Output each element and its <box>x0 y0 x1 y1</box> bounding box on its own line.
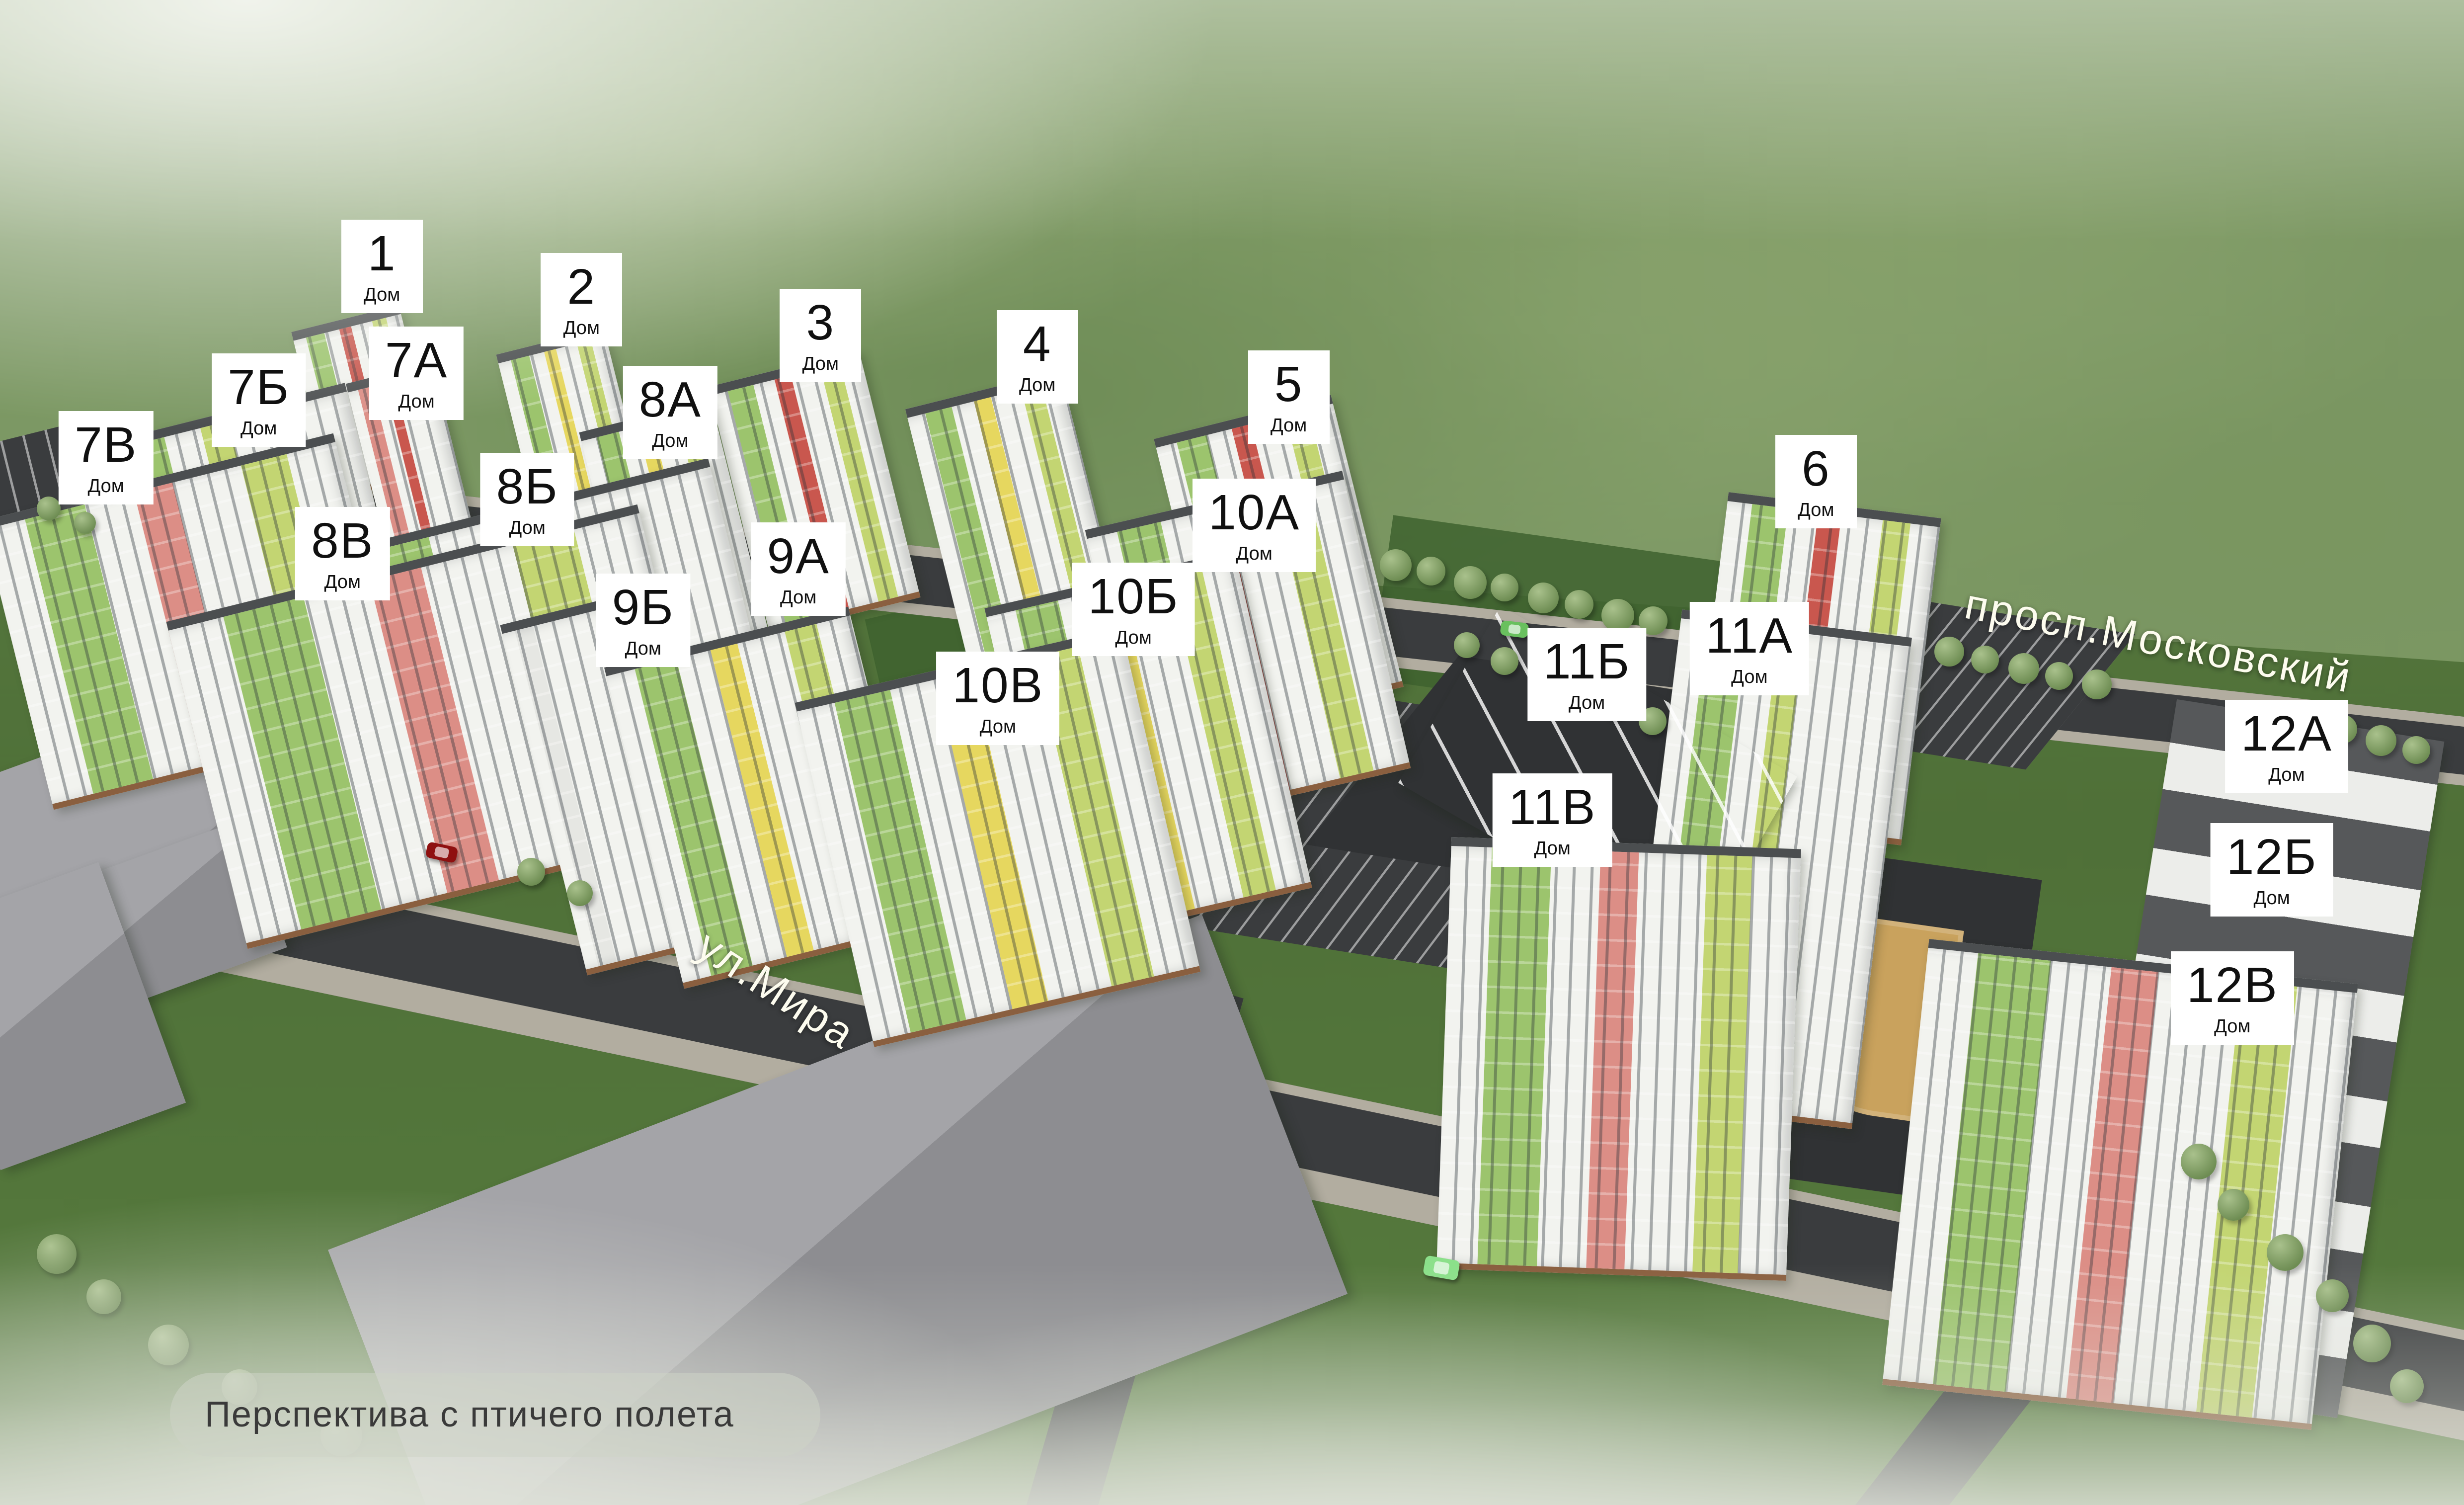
house-word: Дом <box>1706 668 1794 686</box>
house-word: Дом <box>1013 376 1062 395</box>
building-label-6[interactable]: 6Дом <box>1775 435 1857 528</box>
house-word: Дом <box>612 639 674 658</box>
house-word: Дом <box>639 431 702 450</box>
tree <box>2181 1144 2217 1179</box>
building-label-12Б[interactable]: 12БДом <box>2211 823 2333 917</box>
tree <box>1528 583 1559 613</box>
house-word: Дом <box>357 285 407 304</box>
tree <box>2045 662 2073 690</box>
house-word: Дом <box>767 588 830 607</box>
tree <box>2218 1189 2249 1221</box>
tree <box>1934 637 1964 667</box>
masterplan-rendering: ул.Мирапросп.Московский 1Дом2Дом3Дом4Дом… <box>0 0 2464 1505</box>
tree <box>2402 736 2430 764</box>
building-label-11А[interactable]: 11АДом <box>1690 602 1810 695</box>
house-word: Дом <box>385 392 448 411</box>
house-word: Дом <box>1543 693 1630 712</box>
building-label-8Б[interactable]: 8БДом <box>480 453 574 546</box>
building-number: 12В <box>2187 960 2278 1010</box>
tree <box>1491 574 1518 601</box>
building-number: 9Б <box>612 583 674 632</box>
tree <box>1491 647 1518 675</box>
building-number: 10А <box>1208 488 1300 537</box>
building-label-10А[interactable]: 10АДом <box>1192 479 1316 572</box>
building-number: 2 <box>556 262 606 312</box>
building-label-11Б[interactable]: 11БДом <box>1527 628 1646 721</box>
building-label-11В[interactable]: 11ВДом <box>1493 773 1612 867</box>
house-word: Дом <box>2226 889 2317 908</box>
building-number: 10Б <box>1088 572 1179 621</box>
building-label-2[interactable]: 2Дом <box>541 253 622 346</box>
tree <box>517 858 545 886</box>
building-number: 10В <box>952 661 1043 710</box>
building-label-9А[interactable]: 9АДом <box>751 522 846 616</box>
tree <box>86 1279 121 1314</box>
tree <box>1454 566 1487 599</box>
building-number: 9А <box>767 531 830 581</box>
house-word: Дом <box>556 319 606 337</box>
caption-text: Перспектива с птичего полета <box>205 1394 734 1435</box>
building-number: 12Б <box>2226 832 2317 882</box>
tree <box>1971 646 1999 673</box>
building-label-8А[interactable]: 8АДом <box>623 366 717 459</box>
tree <box>37 1234 77 1274</box>
house-word: Дом <box>75 477 137 496</box>
tree <box>74 512 96 534</box>
house-word: Дом <box>496 518 558 537</box>
green-bus <box>1500 620 1529 638</box>
building-number: 8А <box>639 375 702 424</box>
house-word: Дом <box>2241 765 2332 784</box>
tree <box>2267 1234 2304 1271</box>
building-label-7А[interactable]: 7АДом <box>369 327 464 420</box>
house-word: Дом <box>1088 628 1179 647</box>
building-label-5[interactable]: 5Дом <box>1248 350 1330 444</box>
building-label-3[interactable]: 3Дом <box>780 289 861 382</box>
building-number: 12А <box>2241 709 2332 758</box>
tree <box>1565 590 1593 619</box>
building-label-12В[interactable]: 12ВДом <box>2171 951 2294 1045</box>
building-number: 6 <box>1791 444 1841 494</box>
building-label-10В[interactable]: 10ВДом <box>936 652 1059 745</box>
building-number: 11В <box>1509 782 1596 832</box>
building-number: 8Б <box>496 462 558 511</box>
house-word: Дом <box>795 354 845 373</box>
house-word: Дом <box>1208 544 1300 563</box>
building-number: 1 <box>357 229 407 278</box>
building-number: 4 <box>1013 319 1062 369</box>
tree <box>2353 1325 2391 1362</box>
house-word: Дом <box>2187 1017 2278 1036</box>
house-word: Дом <box>228 419 290 438</box>
building-label-10Б[interactable]: 10БДом <box>1072 563 1195 656</box>
building-label-4[interactable]: 4Дом <box>997 310 1078 404</box>
building-number: 5 <box>1264 359 1314 409</box>
building-11v <box>1436 837 1801 1281</box>
tree <box>2316 1279 2349 1312</box>
house-word: Дом <box>1791 501 1841 519</box>
building-number: 11А <box>1706 611 1794 661</box>
building-number: 7Б <box>228 362 290 412</box>
building-label-8В[interactable]: 8ВДом <box>295 507 390 600</box>
building-number: 3 <box>795 298 845 347</box>
house-word: Дом <box>952 717 1043 736</box>
tree <box>1380 549 1412 581</box>
tree <box>1454 632 1480 658</box>
house-word: Дом <box>311 573 374 591</box>
building-label-12А[interactable]: 12АДом <box>2225 700 2348 793</box>
building-label-7Б[interactable]: 7БДом <box>212 353 306 447</box>
building-label-9Б[interactable]: 9БДом <box>596 574 690 667</box>
building-label-7В[interactable]: 7ВДом <box>59 411 153 504</box>
building-number: 8В <box>311 516 374 566</box>
building-number: 7А <box>385 335 448 385</box>
house-word: Дом <box>1509 839 1596 858</box>
building-number: 11Б <box>1543 637 1630 686</box>
building-label-1[interactable]: 1Дом <box>341 220 423 313</box>
tree <box>148 1325 189 1365</box>
tree <box>2008 653 2039 684</box>
house-word: Дом <box>1264 416 1314 435</box>
building-number: 7В <box>75 420 137 470</box>
tree <box>2366 725 2396 756</box>
tree <box>567 880 593 906</box>
caption-pill: Перспектива с птичего полета <box>170 1373 820 1457</box>
